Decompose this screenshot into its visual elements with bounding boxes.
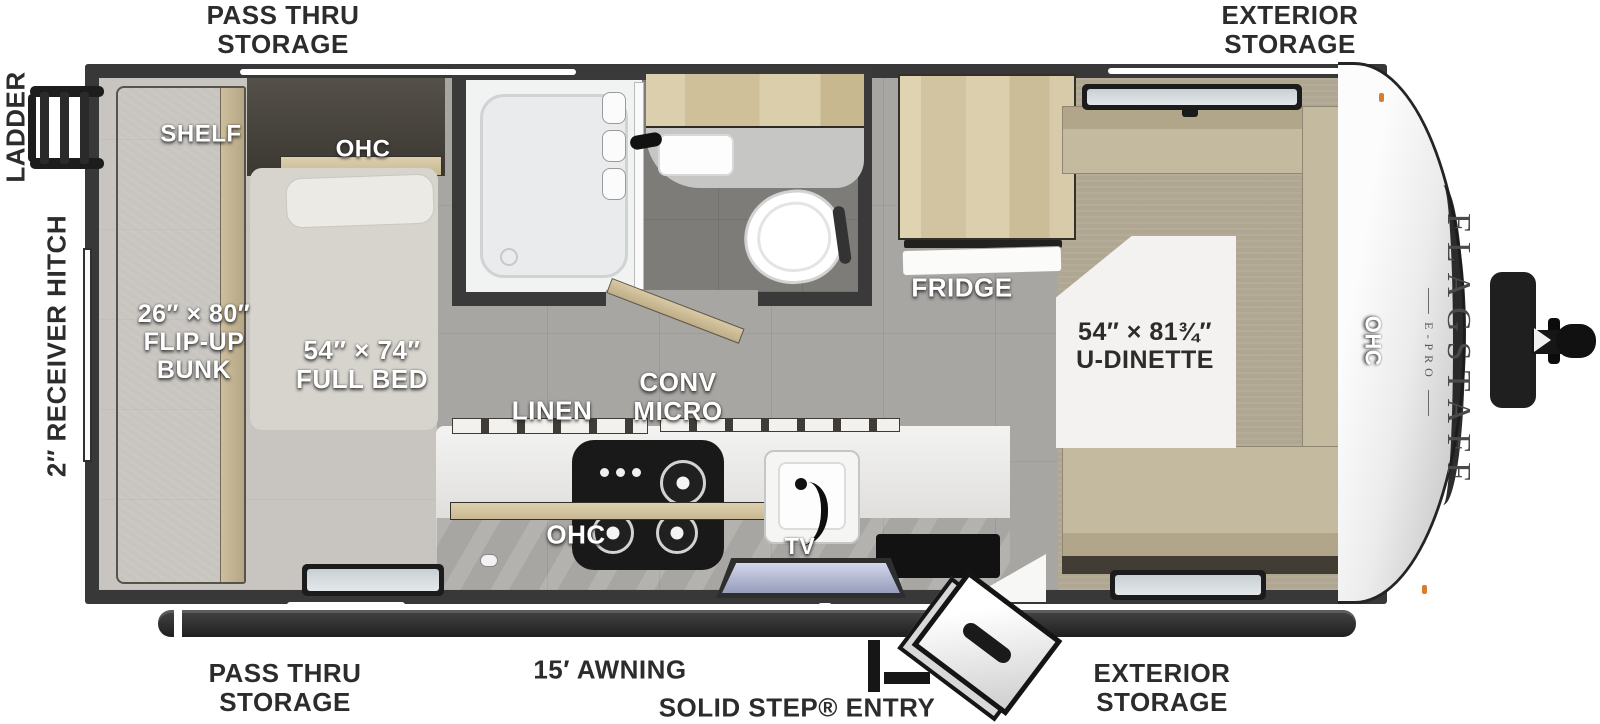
- entry-step-well: [716, 558, 906, 598]
- label-exterior-storage-top: EXTERIOR STORAGE: [1222, 1, 1359, 59]
- label-ladder: LADDER: [1, 71, 30, 182]
- vanity-cabinet: [646, 74, 864, 128]
- bed-pillow: [285, 173, 435, 228]
- shower-caddy: [602, 130, 626, 162]
- ladder-icon: [26, 78, 106, 182]
- label-pass-thru-storage-bottom: PASS THRU STORAGE: [209, 659, 362, 717]
- cooktop-knob-dot: [632, 468, 641, 477]
- marker-light: [1378, 92, 1385, 103]
- label-ohc-kitchen: OHC: [546, 520, 605, 549]
- label-full-bed: 54″ × 74″ FULL BED: [296, 336, 428, 394]
- burner: [660, 460, 706, 506]
- overhead-cabinet-kitchen: [450, 502, 816, 520]
- hitch-coupler: [1534, 328, 1551, 352]
- label-flip-up-bunk: 26″ × 80″ FLIP-UP BUNK: [138, 300, 251, 384]
- label-shelf: SHELF: [160, 122, 241, 149]
- hitch-ball: [1556, 324, 1596, 358]
- label-ohc-bed: OHC: [336, 137, 391, 164]
- window-latch: [1182, 108, 1198, 117]
- kitchen-faucet-base: [795, 478, 807, 490]
- shower-caddy: [602, 168, 626, 200]
- awning-end-cap: [174, 610, 182, 637]
- label-linen: LINEN: [512, 396, 593, 425]
- floorplan-diagram: FLAGSTAFF E-PRO PASS THRU STORAGE EXTERI…: [0, 0, 1600, 724]
- receiver-hitch-tube: [83, 248, 92, 462]
- brand-model: E-PRO: [1421, 288, 1436, 416]
- shower-drain: [500, 248, 518, 266]
- step-bracket: [868, 640, 880, 692]
- fridge-cabinet: [898, 74, 1076, 240]
- wall-slit: [818, 603, 832, 609]
- label-receiver-hitch: 2″ RECEIVER HITCH: [42, 215, 71, 477]
- exterior-storage-door-top: [1108, 68, 1340, 74]
- label-awning: 15′ AWNING: [533, 655, 686, 684]
- brand-name: FLAGSTAFF: [1439, 213, 1477, 491]
- label-ohc-dinette: OHC: [1360, 316, 1385, 366]
- label-fridge: FRIDGE: [911, 273, 1012, 302]
- bathroom-sink: [658, 134, 734, 176]
- hitch-frame: [1490, 272, 1536, 408]
- dinette-bottom-window: [1110, 570, 1266, 600]
- marker-light: [1421, 584, 1428, 595]
- cabinet-knob: [480, 554, 498, 567]
- cooktop-knob-dot: [600, 468, 609, 477]
- bedroom-window: [302, 564, 444, 596]
- pass-thru-storage-door: [240, 69, 576, 75]
- label-solid-step-entry: SOLID STEP® ENTRY: [659, 693, 936, 722]
- shower-caddy: [602, 92, 626, 124]
- step-bracket: [884, 672, 930, 684]
- dinette-top-window: [1082, 84, 1302, 110]
- label-exterior-storage-bottom: EXTERIOR STORAGE: [1094, 659, 1231, 717]
- dinette-bench-bottom: [1062, 446, 1348, 560]
- label-tv: TV: [785, 534, 815, 560]
- label-pass-thru-storage-top: PASS THRU STORAGE: [207, 1, 360, 59]
- label-u-dinette: 54″ × 81¾″ U-DINETTE: [1076, 318, 1214, 374]
- cooktop-knob-dot: [616, 468, 625, 477]
- pass-thru-storage-door-bottom: [287, 602, 405, 608]
- awning-roller: [158, 610, 1356, 637]
- label-conv-micro: CONV MICRO: [633, 368, 722, 426]
- shower-glass: [634, 82, 644, 290]
